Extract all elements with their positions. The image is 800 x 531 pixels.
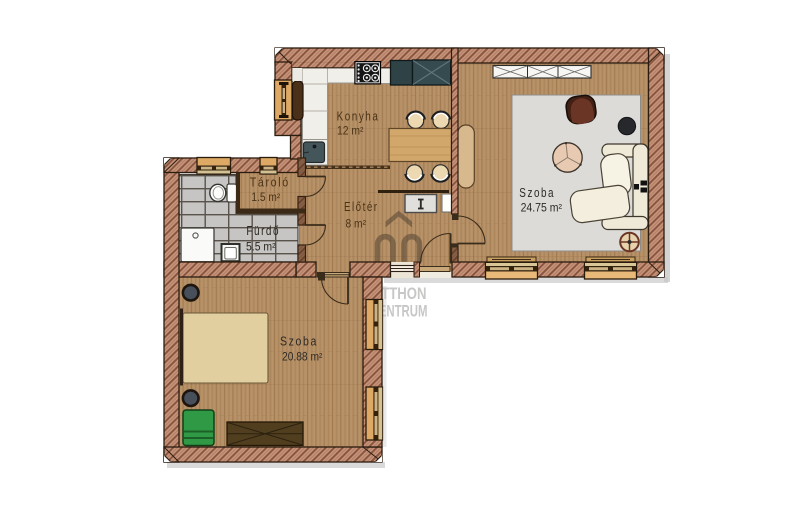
svg-text:12 m²: 12 m²	[337, 126, 364, 138]
svg-text:8 m²: 8 m²	[346, 219, 367, 231]
svg-text:Szoba: Szoba	[280, 334, 318, 349]
svg-text:1.5 m²: 1.5 m²	[251, 192, 280, 204]
svg-text:Fürdő: Fürdő	[246, 223, 280, 238]
svg-text:5.5 m²: 5.5 m²	[246, 242, 276, 254]
svg-text:Előtér: Előtér	[344, 199, 379, 214]
svg-text:Konyha: Konyha	[337, 108, 380, 123]
svg-text:Tároló: Tároló	[250, 174, 290, 189]
svg-text:20.88 m²: 20.88 m²	[282, 351, 323, 363]
svg-text:Szoba: Szoba	[519, 185, 555, 200]
svg-text:24.75 m²: 24.75 m²	[521, 203, 563, 215]
